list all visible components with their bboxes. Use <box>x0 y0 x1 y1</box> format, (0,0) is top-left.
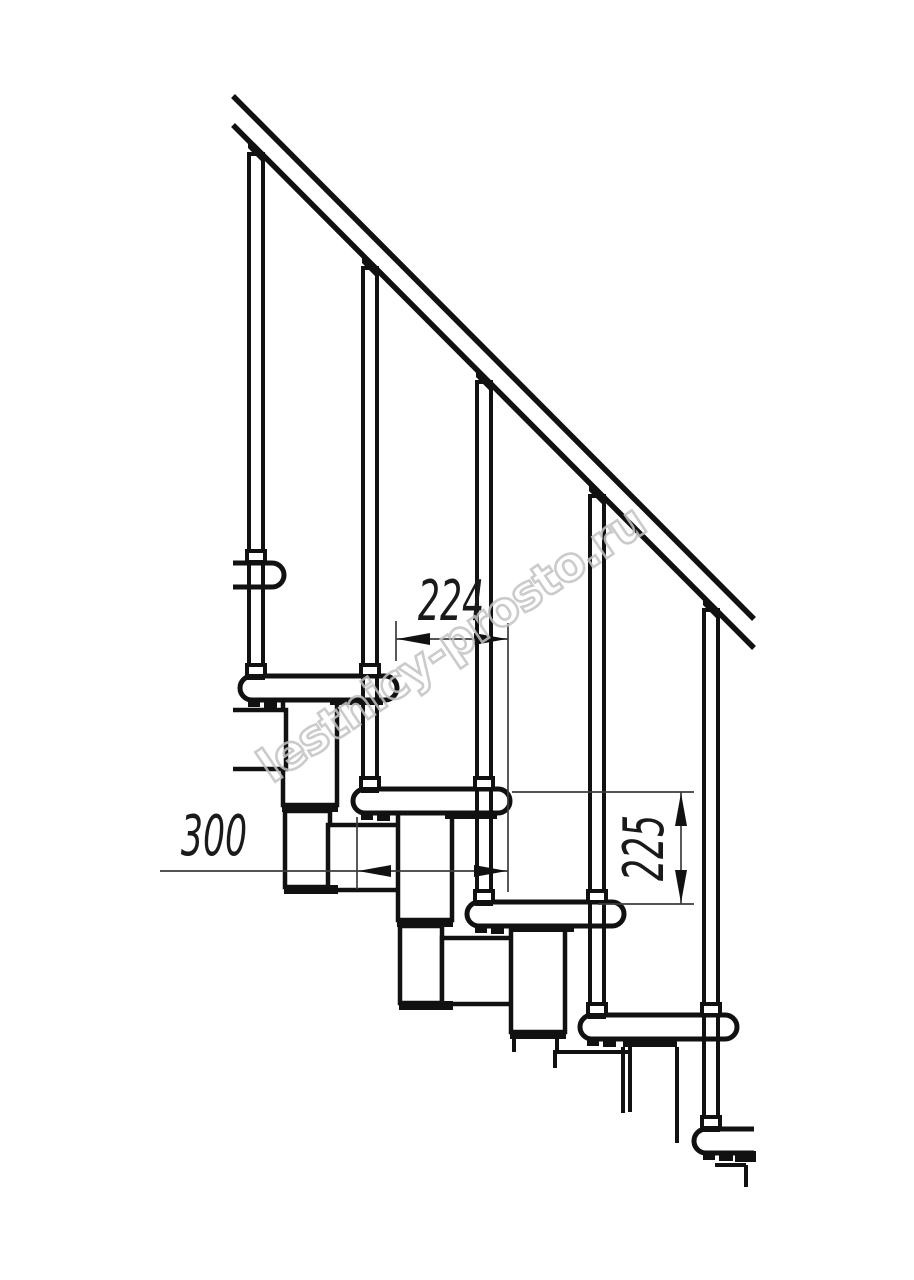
handrail <box>233 96 754 648</box>
column-cap <box>397 918 453 927</box>
staircase-drawing-page: 224 300 225 lestnicy-prosto.ru <box>0 0 914 1280</box>
support-block <box>400 926 442 1003</box>
dimension-label-rise: 225 <box>611 815 676 881</box>
arrowhead-up <box>675 793 687 826</box>
baluster <box>704 610 718 1130</box>
module-square <box>442 938 517 1004</box>
tread <box>233 563 284 587</box>
dimension-label-depth: 300 <box>181 803 247 868</box>
column-cap <box>399 1001 453 1010</box>
staircase-drawing: 224 300 225 lestnicy-prosto.ru <box>0 0 914 1280</box>
watermark-text: lestnicy-prosto.ru <box>248 494 655 794</box>
column-cap <box>284 885 338 894</box>
arrowhead-down <box>675 870 687 903</box>
column-cap <box>282 803 338 812</box>
handrail-bottom-edge <box>233 125 754 648</box>
support-block <box>285 811 330 887</box>
baluster <box>249 154 263 678</box>
support-column <box>511 925 565 1032</box>
module-square <box>328 825 403 890</box>
handrail-top-edge <box>233 96 754 619</box>
support-column <box>398 812 452 920</box>
column-cap <box>510 1030 566 1039</box>
tread <box>694 1129 754 1153</box>
